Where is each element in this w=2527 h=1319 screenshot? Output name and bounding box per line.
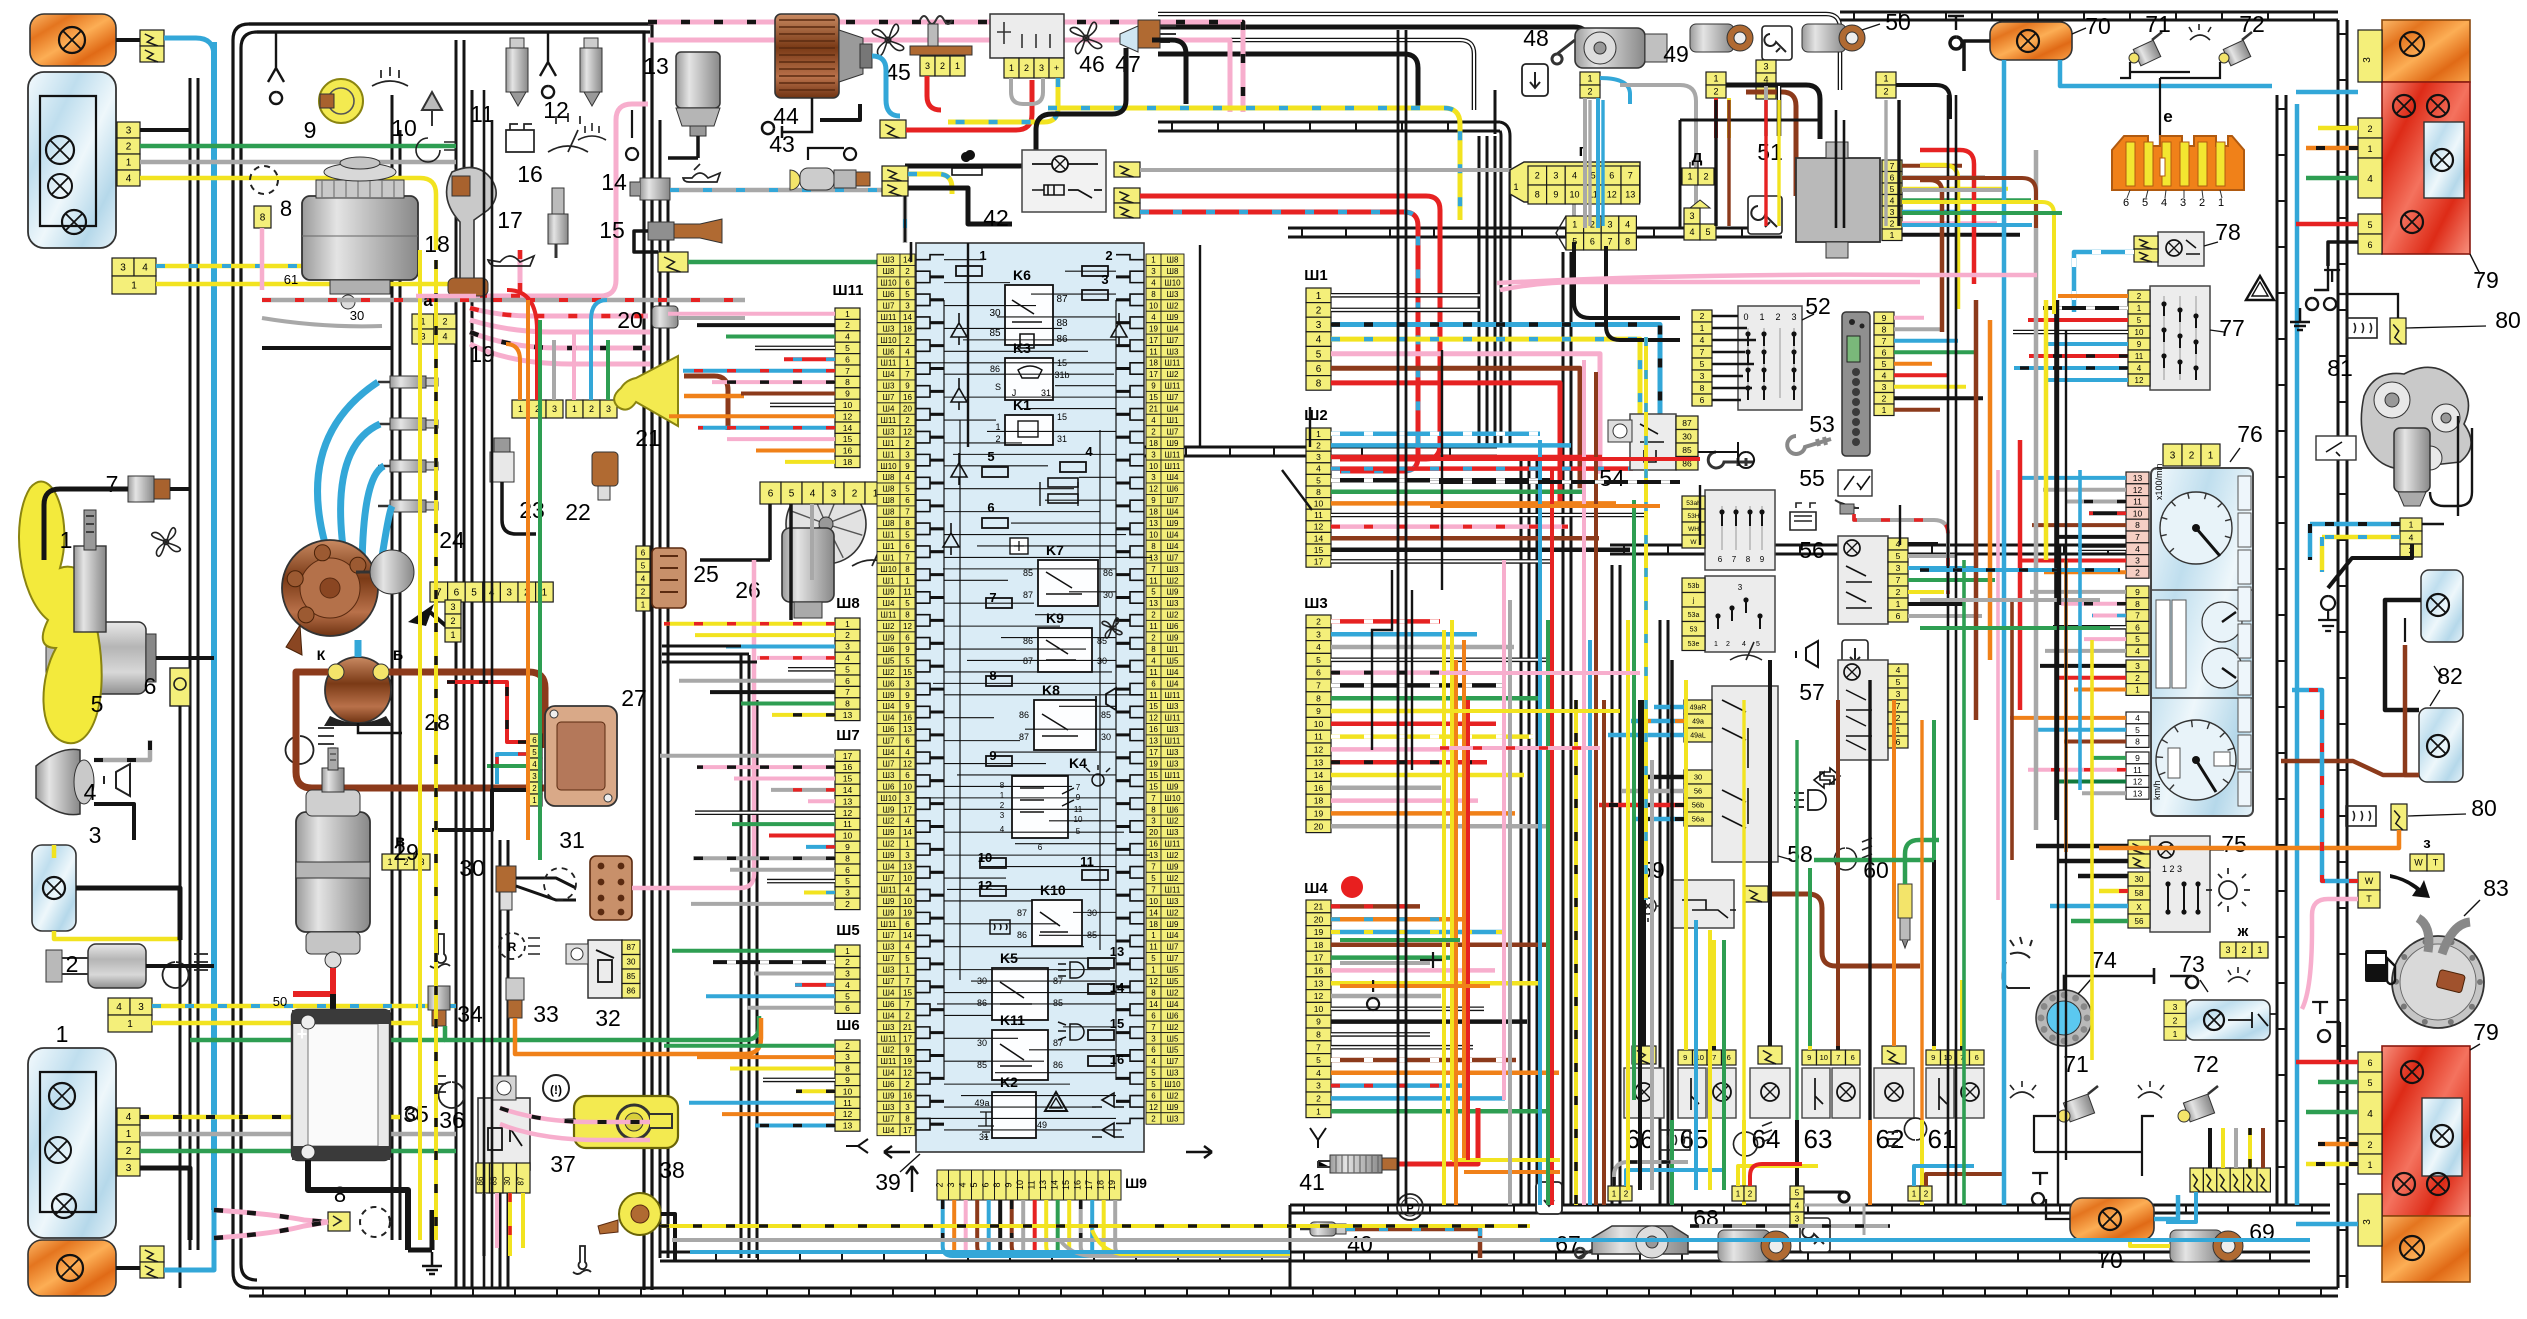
svg-text:6: 6 [1851, 1053, 1855, 1062]
svg-text:12: 12 [843, 411, 853, 421]
svg-text:Ш1: Ш1 [1167, 416, 1179, 425]
svg-text:4: 4 [1151, 416, 1156, 425]
svg-text:7: 7 [1151, 794, 1156, 803]
svg-text:7: 7 [1700, 347, 1705, 357]
svg-text:87: 87 [1682, 418, 1692, 428]
svg-text:6: 6 [1700, 395, 1705, 405]
svg-text:Ш4: Ш4 [1167, 931, 1179, 940]
svg-text:2: 2 [1883, 87, 1888, 97]
svg-text:Ш7: Ш7 [1167, 393, 1179, 402]
svg-text:16: 16 [903, 393, 912, 402]
svg-text:Ш7: Ш7 [883, 759, 895, 768]
svg-text:6: 6 [1038, 843, 1043, 852]
svg-text:3: 3 [2135, 661, 2140, 671]
svg-text:5: 5 [1151, 874, 1156, 883]
svg-text:Ш1: Ш1 [883, 542, 895, 551]
svg-text:K3: K3 [1013, 340, 1031, 356]
svg-text:10: 10 [1074, 815, 1083, 824]
svg-text:7: 7 [106, 471, 119, 497]
svg-text:Ш10: Ш10 [880, 336, 897, 345]
svg-text:10: 10 [1015, 1180, 1025, 1190]
svg-text:1: 1 [2137, 304, 2142, 313]
svg-text:8: 8 [260, 213, 266, 224]
svg-text:Ш4: Ш4 [1167, 405, 1179, 414]
svg-text:21: 21 [1149, 405, 1158, 414]
svg-text:7: 7 [845, 366, 850, 376]
svg-text:7: 7 [1882, 336, 1887, 346]
svg-text:3: 3 [532, 772, 537, 781]
svg-text:2: 2 [1105, 248, 1112, 263]
svg-text:20: 20 [617, 307, 643, 333]
svg-text:9: 9 [1151, 496, 1156, 505]
svg-text:Ш11: Ш11 [881, 611, 897, 620]
svg-text:1: 1 [2218, 197, 2224, 209]
svg-text:3: 3 [1763, 62, 1768, 72]
svg-text:1: 1 [845, 619, 850, 629]
svg-text:1: 1 [905, 576, 910, 585]
svg-text:Ш11: Ш11 [1165, 359, 1181, 368]
svg-text:3: 3 [946, 1182, 956, 1187]
svg-text:85: 85 [1101, 710, 1111, 720]
svg-text:2: 2 [940, 61, 945, 71]
svg-text:13: 13 [843, 710, 853, 720]
svg-text:Ш1: Ш1 [883, 553, 895, 562]
svg-text:10: 10 [1314, 498, 1324, 508]
svg-text:4: 4 [2367, 174, 2373, 185]
svg-text:9: 9 [905, 691, 910, 700]
svg-text:Ш9: Ш9 [883, 588, 895, 597]
svg-text:1: 1 [1151, 966, 1156, 975]
svg-text:12: 12 [543, 97, 569, 123]
svg-text:11: 11 [843, 819, 852, 829]
svg-text:87: 87 [1023, 590, 1033, 600]
svg-text:1: 1 [905, 966, 910, 975]
svg-text:21: 21 [635, 425, 661, 451]
svg-text:Ш3: Ш3 [883, 324, 895, 333]
svg-text:9: 9 [845, 1075, 850, 1085]
svg-text:8: 8 [1151, 645, 1156, 654]
svg-text:10: 10 [2133, 508, 2143, 518]
svg-text:Ш6: Ш6 [883, 290, 895, 299]
svg-text:Ш11: Ш11 [881, 1034, 897, 1043]
svg-text:Ш2: Ш2 [1167, 1092, 1179, 1101]
svg-text:16: 16 [843, 762, 853, 772]
svg-text:1: 1 [1896, 599, 1901, 609]
svg-text:34: 34 [457, 1001, 483, 1027]
svg-text:9: 9 [1151, 382, 1156, 391]
svg-text:19: 19 [1107, 1180, 1117, 1190]
svg-text:53: 53 [1809, 411, 1835, 437]
svg-text:87: 87 [1017, 908, 1027, 918]
svg-text:13: 13 [903, 725, 912, 734]
svg-text:5: 5 [91, 691, 104, 717]
svg-text:6: 6 [2367, 1058, 2372, 1068]
svg-text:4: 4 [2135, 646, 2140, 656]
svg-text:Ш9: Ш9 [1167, 313, 1179, 322]
svg-text:4: 4 [845, 653, 850, 663]
svg-text:2: 2 [1151, 1114, 1156, 1123]
svg-text:7: 7 [1628, 171, 1633, 181]
svg-text:13: 13 [1314, 978, 1324, 988]
svg-text:11: 11 [2133, 497, 2142, 507]
svg-text:2: 2 [935, 1182, 945, 1187]
svg-text:1: 1 [2367, 1160, 2372, 1170]
svg-text:1: 1 [572, 404, 577, 414]
svg-text:12: 12 [1314, 991, 1324, 1001]
svg-text:12: 12 [2133, 485, 2143, 495]
svg-text:4: 4 [1316, 335, 1322, 346]
svg-text:3: 3 [905, 301, 910, 310]
svg-text:8: 8 [1746, 555, 1751, 564]
svg-text:K8: K8 [1042, 682, 1060, 698]
svg-text:14: 14 [1050, 1180, 1060, 1190]
svg-text:13: 13 [1149, 737, 1158, 746]
svg-text:12: 12 [1149, 714, 1158, 723]
svg-text:5: 5 [1151, 1069, 1156, 1078]
svg-text:3: 3 [1000, 811, 1005, 820]
svg-text:4: 4 [2367, 1109, 2373, 1120]
svg-text:Ш4: Ш4 [1304, 880, 1328, 897]
svg-text:3: 3 [1896, 563, 1901, 573]
svg-text:6: 6 [845, 865, 850, 875]
svg-text:Ш11: Ш11 [1165, 450, 1181, 459]
svg-text:1: 1 [845, 309, 850, 319]
svg-text:4: 4 [845, 980, 850, 990]
svg-text:56: 56 [2135, 917, 2144, 926]
svg-text:3: 3 [1607, 220, 1612, 230]
svg-text:Б: Б [393, 647, 403, 663]
svg-text:4: 4 [1742, 641, 1746, 648]
svg-text:5: 5 [471, 588, 477, 599]
svg-text:76: 76 [2237, 421, 2263, 447]
svg-text:6: 6 [905, 737, 910, 746]
svg-text:Ш6: Ш6 [883, 782, 895, 791]
svg-text:12: 12 [1149, 1103, 1158, 1112]
svg-text:2: 2 [1896, 713, 1901, 723]
svg-text:1: 1 [845, 946, 850, 956]
svg-text:3: 3 [1151, 267, 1156, 276]
svg-text:Ш1: Ш1 [1167, 645, 1179, 654]
svg-text:9: 9 [989, 748, 996, 763]
svg-text:87: 87 [1056, 294, 1068, 305]
svg-text:Ш6: Ш6 [883, 679, 895, 688]
svg-text:5: 5 [1076, 827, 1081, 836]
svg-text:Ш9: Ш9 [883, 897, 895, 906]
svg-text:8: 8 [2135, 520, 2140, 530]
svg-text:6: 6 [1718, 555, 1723, 564]
svg-text:9: 9 [2137, 340, 2142, 349]
svg-text:12: 12 [978, 878, 992, 893]
svg-text:K2: K2 [1000, 1074, 1018, 1090]
svg-text:6: 6 [2123, 197, 2129, 209]
svg-text:2: 2 [905, 336, 910, 345]
svg-text:Ш8: Ш8 [883, 496, 895, 505]
svg-text:2: 2 [126, 1146, 132, 1157]
svg-text:Ш6: Ш6 [1167, 805, 1179, 814]
svg-text:11: 11 [1149, 347, 1158, 356]
svg-text:1: 1 [1714, 641, 1718, 648]
svg-text:7: 7 [905, 1000, 910, 1009]
svg-text:4: 4 [2135, 713, 2140, 723]
svg-text:1: 1 [641, 600, 646, 609]
svg-text:Ш7: Ш7 [883, 737, 895, 746]
svg-text:2: 2 [2137, 292, 2142, 301]
svg-text:Ш7: Ш7 [883, 1114, 895, 1123]
svg-text:20: 20 [1314, 914, 1324, 924]
svg-text:21: 21 [1314, 901, 1324, 911]
svg-text:Ш10: Ш10 [880, 794, 897, 803]
svg-text:Ш9: Ш9 [883, 634, 895, 643]
svg-text:Ш9: Ш9 [883, 1092, 895, 1101]
svg-text:4: 4 [2161, 197, 2167, 209]
svg-text:55: 55 [1799, 465, 1825, 491]
svg-text:Ш1: Ш1 [883, 450, 895, 459]
svg-text:Ш1: Ш1 [1304, 267, 1327, 284]
svg-text:Ш11: Ш11 [881, 359, 897, 368]
svg-text:Ш10: Ш10 [1164, 1080, 1181, 1089]
svg-text:K9: K9 [1046, 610, 1064, 626]
svg-text:6: 6 [768, 489, 774, 500]
svg-text:Ш3: Ш3 [1167, 599, 1179, 608]
svg-text:2: 2 [1882, 393, 1887, 403]
svg-text:18: 18 [1096, 1180, 1106, 1190]
svg-text:Ш5: Ш5 [836, 922, 859, 939]
svg-text:Ш6: Ш6 [1167, 485, 1179, 494]
svg-text:1: 1 [1896, 725, 1901, 735]
svg-text:9: 9 [1931, 1053, 1935, 1062]
svg-text:4: 4 [1689, 227, 1694, 237]
svg-text:12: 12 [1149, 485, 1158, 494]
svg-text:1: 1 [1759, 312, 1764, 322]
svg-text:T: T [2433, 858, 2439, 868]
svg-text:18: 18 [843, 457, 853, 467]
svg-text:Ш3: Ш3 [883, 966, 895, 975]
svg-text:53a: 53a [1688, 612, 1700, 619]
svg-text:Ш3: Ш3 [883, 1103, 895, 1112]
svg-text:3: 3 [905, 794, 910, 803]
svg-text:26: 26 [735, 577, 761, 603]
svg-text:1: 1 [1883, 74, 1888, 84]
svg-text:13: 13 [1149, 599, 1158, 608]
svg-text:87: 87 [1019, 732, 1029, 742]
svg-text:1: 1 [955, 61, 960, 71]
svg-text:1: 1 [979, 248, 986, 263]
svg-text:85: 85 [1023, 568, 1033, 578]
svg-text:19: 19 [1149, 759, 1158, 768]
svg-text:5: 5 [641, 561, 646, 570]
svg-text:19: 19 [1314, 808, 1324, 818]
svg-text:30: 30 [627, 958, 636, 967]
svg-text:1: 1 [126, 158, 132, 169]
svg-text:2: 2 [1624, 1189, 1629, 1198]
svg-text:83: 83 [2483, 875, 2509, 901]
svg-text:6: 6 [1882, 347, 1887, 357]
svg-text:5: 5 [1316, 655, 1321, 665]
svg-text:70: 70 [2085, 13, 2111, 39]
svg-text:6: 6 [987, 500, 994, 515]
svg-text:11: 11 [1149, 622, 1158, 631]
svg-text:7: 7 [905, 370, 910, 379]
svg-text:3: 3 [845, 888, 850, 898]
svg-text:21: 21 [903, 1023, 912, 1032]
svg-text:9: 9 [1316, 1017, 1321, 1027]
svg-text:7: 7 [1151, 1023, 1156, 1032]
svg-text:17: 17 [497, 207, 523, 233]
svg-text:32: 32 [595, 1005, 621, 1031]
svg-text:K11: K11 [1000, 1012, 1025, 1028]
svg-text:Ш2: Ш2 [1167, 817, 1179, 826]
svg-text:2: 2 [442, 317, 447, 327]
svg-text:8: 8 [2135, 599, 2140, 609]
svg-text:4: 4 [532, 760, 537, 769]
svg-text:е: е [2163, 107, 2172, 126]
svg-text:Ш5: Ш5 [883, 656, 895, 665]
svg-text:50: 50 [273, 994, 287, 1009]
svg-text:77: 77 [2219, 315, 2245, 341]
svg-text:Ш3: Ш3 [883, 427, 895, 436]
svg-text:2: 2 [1151, 611, 1156, 620]
svg-text:9: 9 [1004, 1182, 1014, 1187]
svg-text:3: 3 [1039, 63, 1044, 73]
svg-text:8: 8 [2135, 737, 2140, 747]
svg-text:7: 7 [1836, 1053, 1840, 1062]
svg-text:Ш7: Ш7 [1167, 954, 1179, 963]
svg-text:K6: K6 [1013, 267, 1031, 283]
svg-text:2: 2 [1924, 1189, 1929, 1198]
svg-text:13: 13 [2133, 473, 2143, 483]
svg-text:10: 10 [1149, 462, 1158, 471]
svg-text:4: 4 [905, 885, 910, 894]
svg-text:5: 5 [1795, 1188, 1800, 1197]
svg-text:2: 2 [1535, 171, 1540, 181]
svg-text:9: 9 [2135, 753, 2140, 763]
svg-text:T: T [2366, 894, 2372, 904]
svg-text:3: 3 [1316, 320, 1322, 331]
svg-text:Ш9: Ш9 [883, 908, 895, 917]
svg-text:3: 3 [2180, 197, 2186, 209]
svg-text:49aR: 49aR [1690, 705, 1707, 712]
svg-text:Ш6: Ш6 [1167, 1011, 1179, 1020]
svg-text:3: 3 [845, 969, 850, 979]
svg-text:63: 63 [1804, 1124, 1833, 1154]
svg-text:5: 5 [2142, 197, 2148, 209]
svg-text:1: 1 [1882, 405, 1887, 415]
svg-text:53b: 53b [1688, 583, 1700, 590]
svg-text:11: 11 [1149, 668, 1158, 677]
svg-text:Ш10: Ш10 [880, 279, 897, 288]
svg-text:22: 22 [565, 499, 591, 525]
svg-text:14: 14 [843, 423, 853, 433]
svg-text:14: 14 [601, 169, 627, 195]
svg-text:7: 7 [905, 553, 910, 562]
svg-text:10: 10 [843, 1086, 853, 1096]
svg-text:30: 30 [1101, 732, 1111, 742]
svg-text:39: 39 [875, 1169, 901, 1195]
svg-text:8: 8 [845, 377, 850, 387]
svg-text:1: 1 [131, 281, 137, 292]
svg-text:Ш3: Ш3 [1167, 565, 1179, 574]
svg-text:53: 53 [1690, 626, 1698, 633]
svg-text:1: 1 [905, 840, 910, 849]
svg-text:6: 6 [1151, 679, 1156, 688]
svg-text:Ш7: Ш7 [1167, 336, 1179, 345]
svg-text:Ш5: Ш5 [1167, 1046, 1179, 1055]
svg-text:Ш6: Ш6 [883, 347, 895, 356]
svg-text:2: 2 [1316, 306, 1322, 317]
svg-text:10: 10 [843, 400, 853, 410]
svg-text:49a: 49a [1692, 719, 1704, 726]
svg-text:13: 13 [843, 1121, 853, 1131]
svg-text:8: 8 [1151, 290, 1156, 299]
svg-text:K1: K1 [1013, 397, 1031, 413]
svg-text:9: 9 [1882, 313, 1887, 323]
svg-text:11: 11 [1149, 943, 1158, 952]
svg-text:16: 16 [1073, 1180, 1083, 1190]
svg-text:Ш3: Ш3 [1167, 759, 1179, 768]
svg-text:15: 15 [1314, 545, 1324, 555]
svg-text:6: 6 [1316, 668, 1321, 678]
svg-text:3: 3 [1890, 207, 1895, 217]
svg-text:2: 2 [1713, 87, 1718, 97]
svg-text:Ш8: Ш8 [883, 473, 895, 482]
svg-text:3: 3 [1316, 629, 1321, 639]
svg-text:6: 6 [1590, 237, 1595, 247]
svg-text:Ш2: Ш2 [1167, 908, 1179, 917]
svg-text:1: 1 [2367, 144, 2372, 154]
svg-text:4: 4 [905, 943, 910, 952]
svg-text:Ш6: Ш6 [1167, 622, 1179, 631]
svg-text:8: 8 [1151, 988, 1156, 997]
svg-text:5: 5 [2367, 1078, 2372, 1088]
svg-text:7: 7 [1151, 565, 1156, 574]
svg-text:10: 10 [843, 831, 853, 841]
svg-text:49aL: 49aL [1690, 733, 1706, 740]
svg-text:3: 3 [905, 679, 910, 688]
svg-text:30: 30 [1682, 431, 1692, 441]
svg-text:7: 7 [905, 977, 910, 986]
svg-text:Ш3: Ш3 [883, 771, 895, 780]
svg-text:50: 50 [1885, 9, 1911, 35]
svg-text:9: 9 [2135, 587, 2140, 597]
svg-text:Ш2: Ш2 [1167, 1023, 1179, 1032]
svg-text:31: 31 [1057, 434, 1067, 444]
svg-text:3: 3 [2225, 945, 2230, 955]
svg-text:19: 19 [1314, 927, 1324, 937]
svg-text:Ш4: Ш4 [883, 988, 895, 997]
svg-text:R: R [508, 940, 517, 954]
svg-text:W: W [2365, 876, 2374, 886]
svg-text:86: 86 [977, 998, 987, 1008]
svg-text:Ш3: Ш3 [1167, 290, 1179, 299]
svg-text:18: 18 [1149, 439, 1158, 448]
svg-text:16: 16 [903, 1092, 912, 1101]
svg-text:10: 10 [1149, 897, 1158, 906]
svg-text:X: X [2136, 903, 2142, 912]
svg-text:Ш11: Ш11 [1165, 840, 1181, 849]
svg-text:30: 30 [503, 1176, 512, 1185]
svg-text:ж: ж [2237, 923, 2249, 940]
svg-text:4: 4 [1085, 444, 1093, 459]
svg-text:17: 17 [903, 805, 912, 814]
svg-text:15: 15 [1061, 1180, 1071, 1190]
svg-text:Ш9: Ш9 [883, 828, 895, 837]
svg-text:Ш2: Ш2 [1167, 301, 1179, 310]
svg-text:8: 8 [280, 196, 292, 221]
svg-text:W: W [1690, 539, 1697, 546]
svg-text:67: 67 [1555, 1231, 1581, 1257]
svg-text:9: 9 [905, 702, 910, 711]
svg-text:4: 4 [905, 473, 910, 482]
